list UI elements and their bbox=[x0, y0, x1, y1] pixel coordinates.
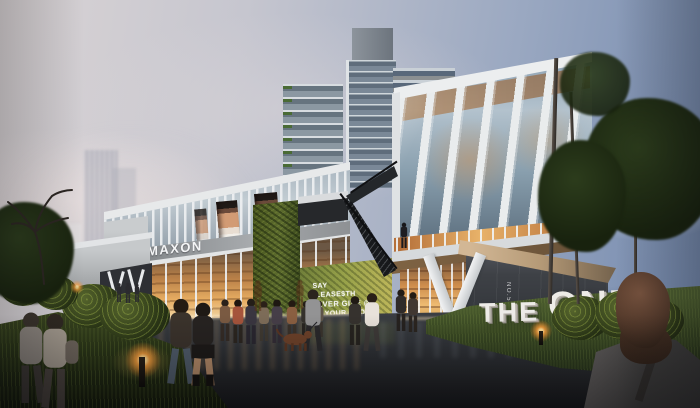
architectural-rendering: NO.5 MAXON SAY PLEASE$TH EVER GIVE @ EP … bbox=[0, 0, 700, 408]
vignette bbox=[0, 0, 700, 408]
